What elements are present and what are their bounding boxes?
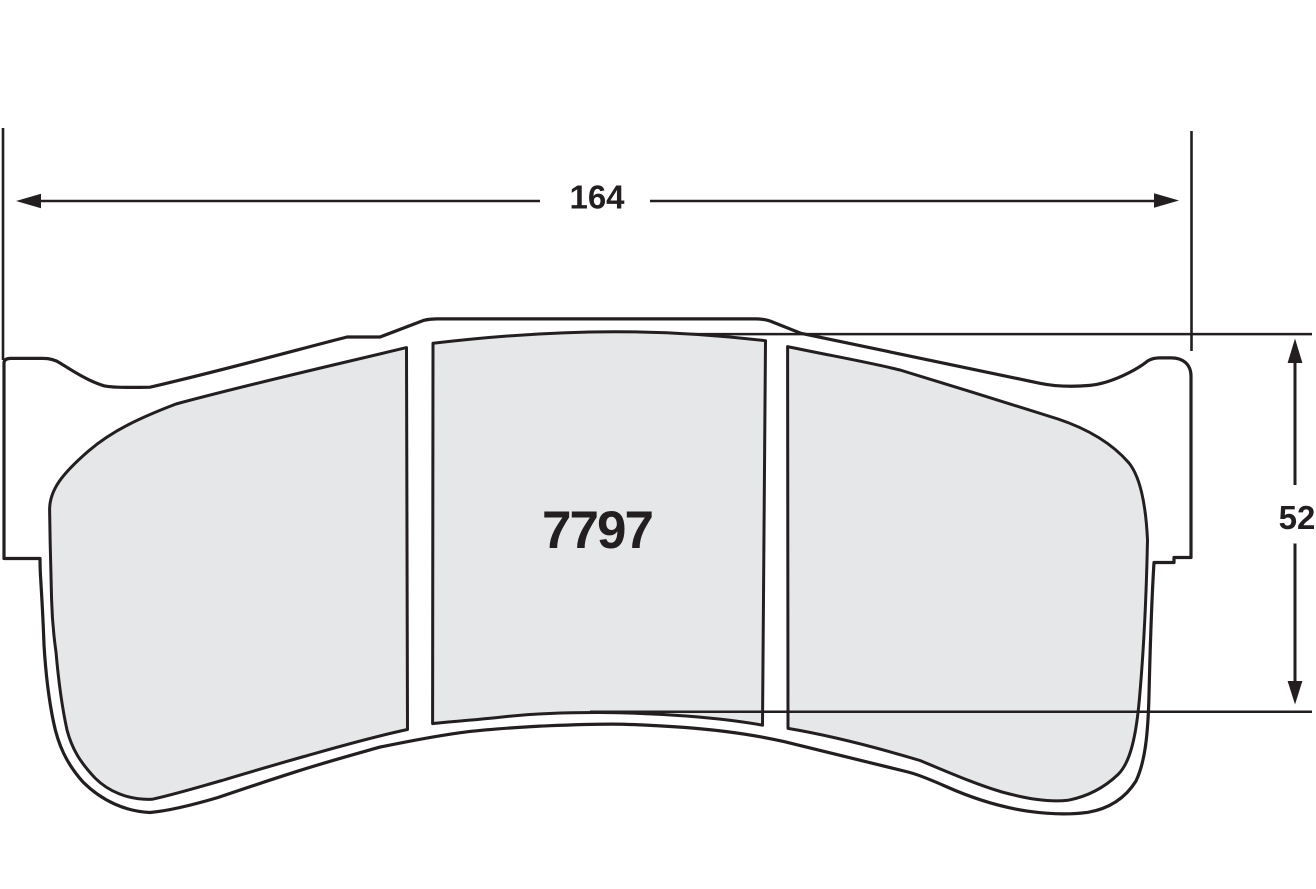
svg-text:52: 52 <box>1279 499 1316 536</box>
svg-text:164: 164 <box>569 179 625 216</box>
svg-text:7797: 7797 <box>542 501 652 560</box>
